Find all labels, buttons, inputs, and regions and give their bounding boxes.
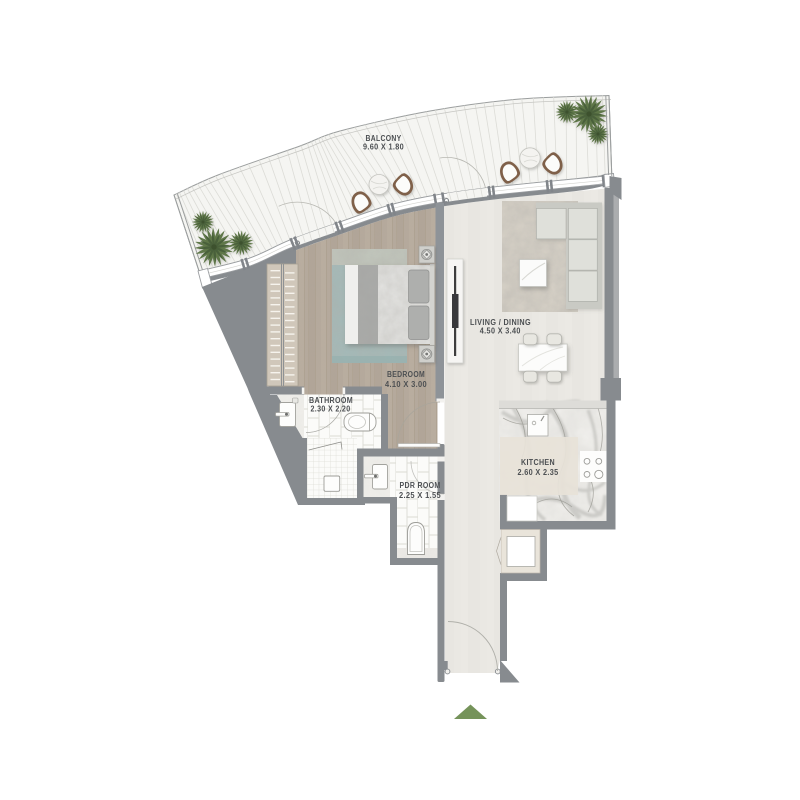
svg-text:2.60 X 2.35: 2.60 X 2.35 [518, 467, 559, 477]
svg-text:PDR ROOM: PDR ROOM [400, 480, 441, 490]
svg-text:2.30 X 2.20: 2.30 X 2.20 [311, 404, 351, 414]
svg-text:4.10 X 3.00: 4.10 X 3.00 [385, 379, 427, 389]
svg-text:KITCHEN: KITCHEN [521, 457, 555, 467]
svg-text:4.50 X 3.40: 4.50 X 3.40 [480, 327, 521, 336]
svg-text:BEDROOM: BEDROOM [387, 369, 425, 379]
svg-text:9.60 X 1.80: 9.60 X 1.80 [363, 142, 404, 152]
svg-text:2.25 X 1.55: 2.25 X 1.55 [399, 490, 441, 500]
